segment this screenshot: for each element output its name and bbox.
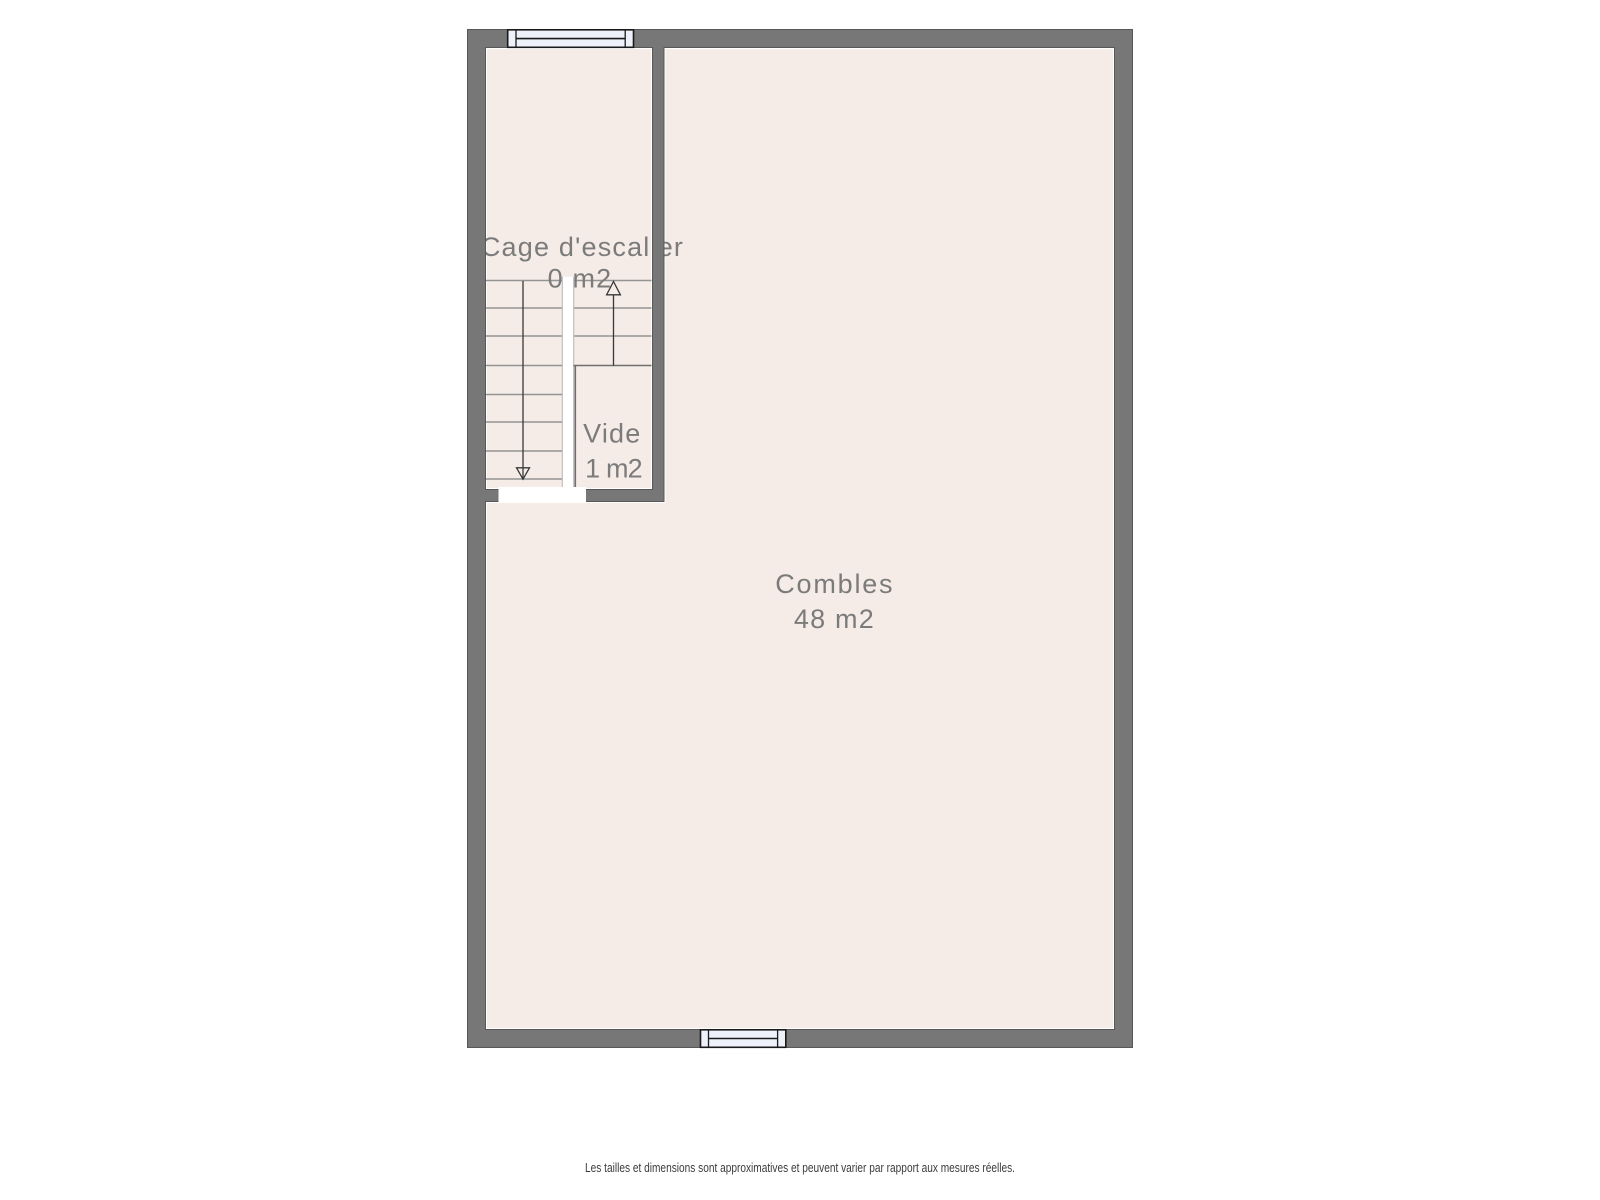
svg-text:Les tailles et dimensions sont: Les tailles et dimensions sont approxima… — [585, 1161, 1015, 1175]
svg-text:1 m2: 1 m2 — [585, 453, 642, 483]
svg-text:Combles: Combles — [775, 569, 894, 599]
svg-text:48 m2: 48 m2 — [794, 604, 875, 634]
svg-text:0 m2: 0 m2 — [548, 264, 613, 294]
svg-text:Vide: Vide — [583, 419, 641, 449]
